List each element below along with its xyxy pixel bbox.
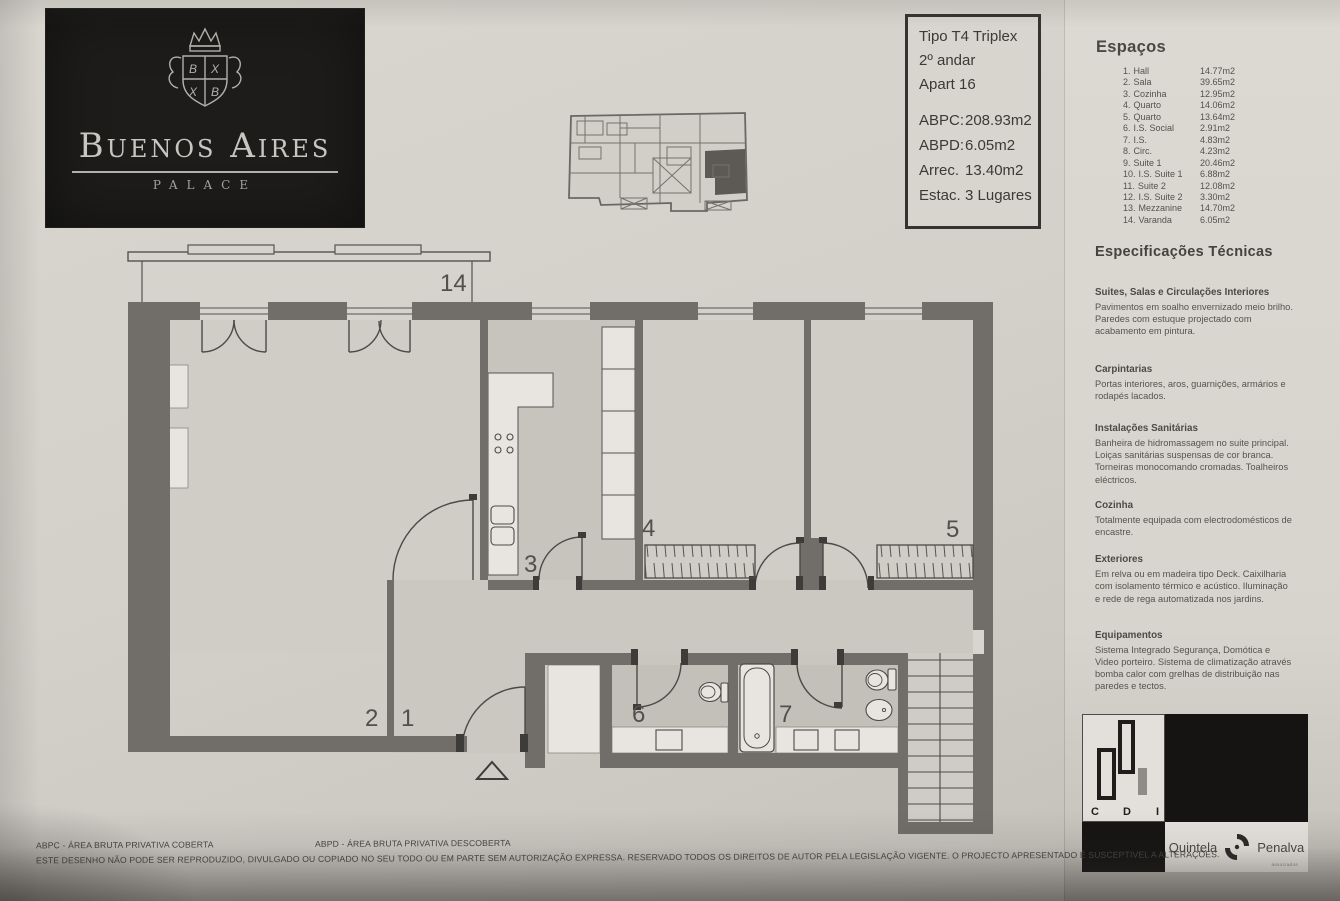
svg-text:B: B: [189, 62, 197, 76]
espacos-row: 4.Quarto14.06m2: [1123, 100, 1273, 111]
espacos-list: 1.Hall14.77m2 2.Sala39.65m2 3.Cozinha12.…: [1123, 66, 1273, 226]
unit-number: Apart 16: [919, 73, 1038, 97]
espacos-title: Espaços: [1096, 38, 1166, 57]
espacos-row: 11.Suite 212.08m2: [1123, 181, 1273, 192]
room-label-quarto4: 4: [642, 515, 655, 542]
cdi-logo-icon: C D I: [1083, 715, 1164, 821]
brand-subtitle: PALACE: [45, 178, 365, 192]
espacos-row: 12.I.S. Suite 23.30m2: [1123, 192, 1273, 203]
espacos-row: 3.Cozinha12.95m2: [1123, 89, 1273, 100]
svg-text:I: I: [1156, 806, 1159, 818]
room-label-hall: 1: [401, 705, 414, 732]
cdi-logo: C D I: [1082, 714, 1165, 822]
crest-icon: BX XB: [145, 22, 265, 122]
room-label-is: 7: [779, 701, 792, 728]
unit-metrics: ABPC:208.93m2 ABPD:6.05m2 Arrec.13.40m2 …: [919, 108, 1038, 208]
quintela-penalva-logo: Quintela Penalva associados: [1165, 822, 1308, 872]
room-label-is-social: 6: [632, 701, 645, 728]
buenos-aires-logo: BX XB Buenos Aires PALACE: [45, 8, 365, 228]
spec-section: Carpintarias Portas interiores, aros, gu…: [1095, 364, 1295, 402]
svg-text:D: D: [1123, 806, 1131, 818]
espacos-row: 7.I.S.4.83m2: [1123, 135, 1273, 146]
room-label-quarto5: 5: [946, 516, 959, 543]
metric-arrec: Arrec.13.40m2: [919, 158, 1038, 183]
black-tile: [1082, 822, 1165, 872]
overview-mini-plan: [555, 103, 765, 228]
legend-footer: ABPC - ÁREA BRUTA PRIVATIVA COBERTA ABPD…: [36, 836, 936, 866]
copyright-notice: ESTE DESENHO NÃO PODE SER REPRODUZIDO, D…: [36, 851, 936, 866]
espacos-row: 8.Circ.4.23m2: [1123, 146, 1273, 157]
metric-estac: Estac.3 Lugares: [919, 183, 1038, 208]
espacos-row: 2.Sala39.65m2: [1123, 77, 1273, 88]
quintela-penalva-icon: [1222, 832, 1252, 862]
metric-abpc: ABPC:208.93m2: [919, 108, 1038, 133]
svg-text:C: C: [1091, 806, 1099, 818]
espacos-row: 10.I.S. Suite 16.88m2: [1123, 169, 1273, 180]
spec-section: Equipamentos Sistema Integrado Segurança…: [1095, 630, 1295, 693]
espacos-row: 14.Varanda6.05m2: [1123, 215, 1273, 226]
brand-title: Buenos Aires: [45, 126, 365, 166]
espacos-row: 5.Quarto13.64m2: [1123, 112, 1273, 123]
abpc-legend: ABPC - ÁREA BRUTA PRIVATIVA COBERTA: [36, 839, 214, 850]
black-tile: [1165, 714, 1308, 822]
spec-section: Suites, Salas e Circulações Interiores P…: [1095, 287, 1295, 338]
spec-section: Cozinha Totalmente equipada com electrod…: [1095, 500, 1295, 538]
specs-title: Especificações Técnicas: [1095, 244, 1273, 260]
espacos-row: 13.Mezzanine14.70m2: [1123, 203, 1273, 214]
floor-plan: 14 2 1 3 4 5 6 7: [120, 240, 1012, 848]
specs-panel: Suites, Salas e Circulações Interiores P…: [1095, 287, 1295, 693]
espacos-row: 6.I.S. Social2.91m2: [1123, 123, 1273, 134]
svg-text:X: X: [188, 85, 198, 99]
metric-abpd: ABPD:6.05m2: [919, 133, 1038, 158]
spec-section: Instalações Sanitárias Banheira de hidro…: [1095, 423, 1295, 486]
espacos-row: 9.Suite 120.46m2: [1123, 158, 1273, 169]
brand-divider: [72, 171, 338, 173]
svg-text:B: B: [211, 85, 219, 99]
espacos-row: 1.Hall14.77m2: [1123, 66, 1273, 77]
room-label-cozinha: 3: [524, 551, 537, 578]
room-label-sala: 2: [365, 705, 378, 732]
svg-text:X: X: [210, 62, 220, 76]
spec-section: Exteriores Em relva ou em madeira tipo D…: [1095, 554, 1295, 605]
room-label-varanda: 14: [440, 270, 467, 297]
info-box: Tipo T4 Triplex 2º andar Apart 16 ABPC:2…: [905, 14, 1041, 229]
scanned-floor-plan-sheet: BX XB Buenos Aires PALACE Tipo T: [0, 0, 1340, 901]
unit-type: Tipo T4 Triplex: [919, 25, 1038, 49]
abpd-legend: ABPD - ÁREA BRUTA PRIVATIVA DESCOBERTA: [315, 838, 511, 849]
unit-floor: 2º andar: [919, 49, 1038, 73]
